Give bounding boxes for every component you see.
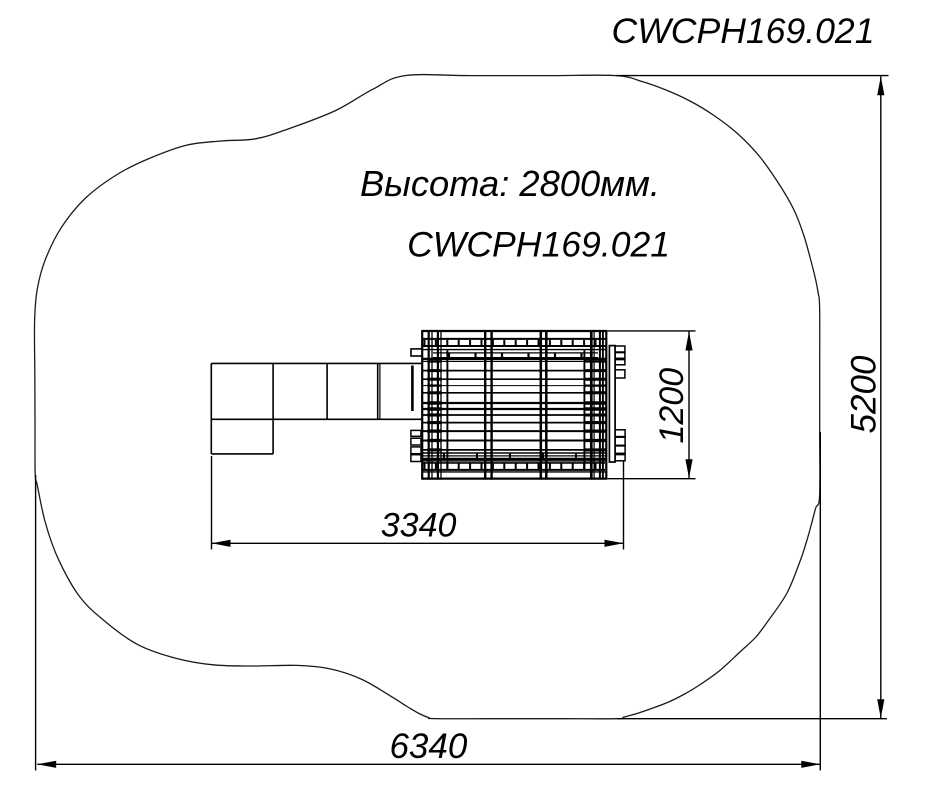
svg-text:3340: 3340 bbox=[381, 507, 457, 545]
svg-text:Высота: 2800мм.: Высота: 2800мм. bbox=[360, 163, 660, 204]
svg-text:5200: 5200 bbox=[845, 355, 884, 433]
svg-text:1200: 1200 bbox=[653, 368, 691, 444]
svg-text:6340: 6340 bbox=[389, 727, 467, 766]
svg-text:CWCPH169.021: CWCPH169.021 bbox=[407, 224, 670, 264]
svg-text:CWCPH169.021: CWCPH169.021 bbox=[612, 11, 875, 51]
